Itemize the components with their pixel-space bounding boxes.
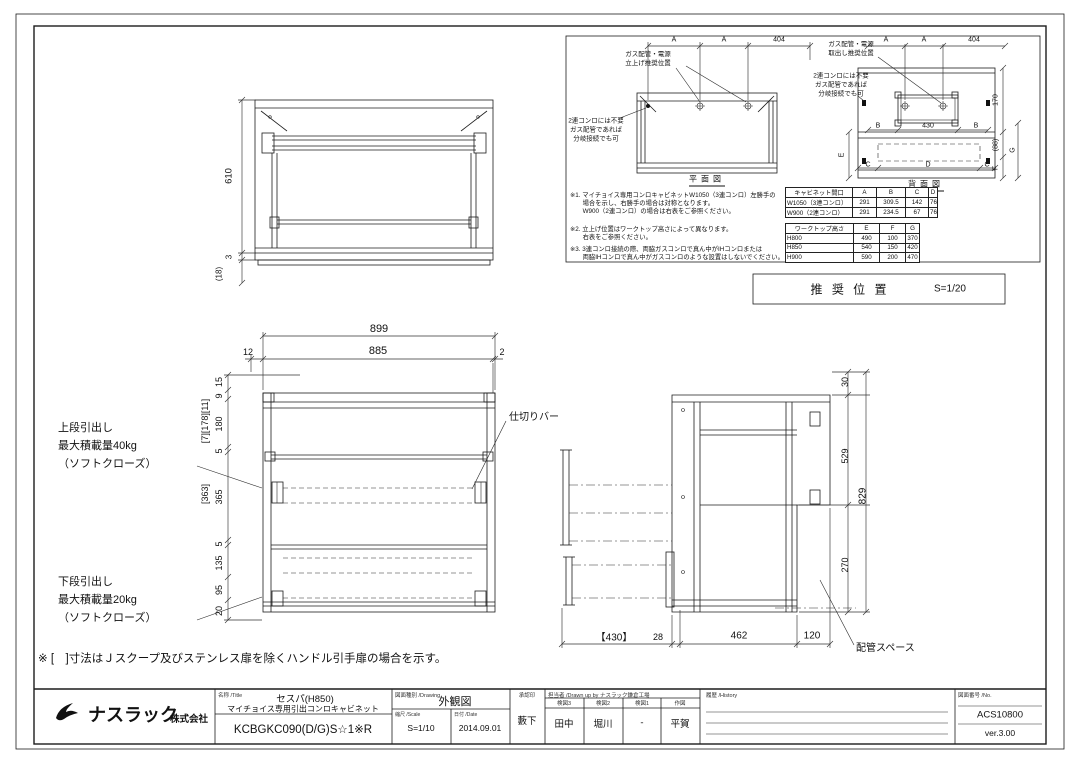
side-dim-462: 462 — [731, 631, 748, 642]
side-dim-529: 529 — [840, 448, 850, 463]
staff-name-2: 堀川 — [593, 716, 612, 730]
rear-dim-430: 430 — [922, 123, 934, 130]
staff-name-4: 平賀 — [670, 716, 689, 730]
approval-label: 承認印 — [519, 691, 536, 699]
front-dim-885: 885 — [369, 345, 387, 357]
scale-value: S=1/10 — [407, 723, 434, 733]
plan-view-label: 平面図 — [689, 174, 725, 187]
drawing-linework — [0, 0, 1080, 763]
rear-dim-170: 170 — [993, 94, 1000, 106]
plan-callout-side: 2連コンロには不要 ガス配管であれば 分岐接続でも可 — [568, 117, 624, 144]
side-dim-120: 120 — [804, 631, 821, 642]
rear-dim-c1: C — [865, 162, 870, 169]
front-dim-180: 180 — [214, 416, 224, 431]
staff-col-label-4: 作図 — [674, 699, 685, 707]
front-dim-9: 9 — [214, 393, 224, 398]
front-dim-20: 20 — [214, 606, 224, 616]
pipe-space-callout: 配管スペース — [856, 639, 915, 654]
rear-callout-top: ガス配管・電源 取出し推奨位置 — [828, 40, 874, 58]
lower-drawer-callout: 下段引出し 最大積載量20kg （ソフトクローズ） — [58, 573, 156, 627]
plan-dim-a2: A — [722, 37, 727, 44]
product-name: マイチョイス専用引出コンロキャビネット — [227, 704, 379, 715]
rear-dim-d: D — [925, 162, 930, 169]
front-dim-overall: 899 — [370, 323, 388, 335]
cabinet-opening-table: キャビネット間口 A B C D W1050（3連コンロ） 291 309.5 … — [785, 187, 938, 218]
recommended-scale-label: S=1/20 — [934, 284, 966, 295]
company-logo-icon — [56, 703, 78, 720]
model-number: KCBGKC090(D/G)S☆1※R — [234, 722, 372, 736]
side-dim-270: 270 — [840, 557, 850, 572]
carcass-dim-bottom: 3 — [225, 255, 234, 259]
rear-callout-side: 2連コンロには不要 ガス配管であれば 分岐接続でも可 — [813, 72, 869, 99]
divider-bar-callout: 仕切りバー — [509, 408, 559, 423]
front-dim-bracket-top: [7][178][11] — [200, 399, 210, 443]
front-dim-365: 365 — [214, 489, 224, 504]
bracket-dimension-note: ※ [ ]寸法はＪスクープ及びステンレス扉を除くハンドル引手扉の場合を示す。 — [38, 650, 446, 666]
rear-dim-f: F — [993, 166, 1000, 170]
rear-dim-e: E — [839, 153, 846, 158]
carcass-view-lines — [238, 97, 493, 286]
rear-dim-a2: A — [922, 37, 927, 44]
scale-label: 縮尺 /Scale — [395, 711, 420, 718]
plan-callout-top: ガス配管・電源 立上げ推奨位置 — [625, 50, 671, 68]
rear-dim-88: (88) — [993, 139, 1000, 151]
drawing-no-label: 図面番号 /No. — [958, 691, 992, 699]
plan-note-2: ※2. 立上げ位置はワークトップ高さによって異なります。 右表をご参照ください。 — [570, 226, 732, 242]
side-view-lines — [559, 369, 870, 648]
drawing-no: ACS10800 — [977, 710, 1023, 721]
carcass-dim-paren: (18) — [215, 267, 224, 281]
company-name: ナスラック — [88, 701, 178, 727]
front-view-lines — [197, 332, 506, 623]
date-label: 日付 /Date — [454, 711, 477, 718]
staff-label: 担当者 /Drawn up by ナスラック鎌倉工場 — [548, 691, 649, 699]
side-dim-829: 829 — [858, 488, 869, 505]
front-dim-2: 2 — [499, 347, 504, 357]
rear-dim-c2: C — [984, 162, 989, 169]
plan-dim-a1: A — [672, 37, 677, 44]
staff-col-label-3: 検図1 — [635, 699, 649, 707]
drawing-type: 外観図 — [439, 693, 472, 709]
carcass-dim-height: 610 — [224, 168, 235, 184]
date-value: 2014.09.01 — [459, 723, 502, 733]
front-dim-5a: 5 — [214, 448, 224, 453]
staff-name-3: - — [640, 718, 643, 729]
name-label: 名称 /Title — [218, 691, 242, 699]
rear-dim-404: 404 — [968, 37, 980, 44]
company-suffix: 株式会社 — [170, 711, 208, 725]
front-dim-95: 95 — [214, 585, 224, 595]
upper-drawer-callout: 上段引出し 最大積載量40kg （ソフトクローズ） — [58, 419, 156, 473]
front-dim-135: 135 — [214, 555, 224, 570]
front-dim-5b: 5 — [214, 541, 224, 546]
staff-col-label-1: 検図3 — [557, 699, 571, 707]
worktop-height-table: ワークトップ高さ E F G H800 490 100 370 H850 540… — [785, 223, 920, 263]
plan-note-3: ※3. 3連コンロ接続の際、両脇ガスコンロで真ん中がIHコンロまたは 両脇IHコ… — [570, 246, 784, 262]
rear-dim-b2: B — [974, 123, 979, 130]
drawing-type-label: 図面種別 /Drawing — [395, 691, 440, 699]
rear-dim-a1: A — [884, 37, 889, 44]
history-label: 履歴 /History — [706, 691, 737, 699]
recommended-position-label: 推 奨 位 置 — [810, 281, 889, 298]
staff-name-1: 田中 — [554, 716, 573, 730]
front-dim-15: 15 — [214, 377, 224, 387]
side-dim-430: 【430】 — [596, 629, 633, 644]
rear-dim-g: G — [1010, 147, 1017, 152]
plan-note-1: ※1. マイチョイス専用コンロキャビネットW1050（3連コンロ）左勝手の 場合… — [570, 192, 776, 215]
side-dim-30: 30 — [840, 377, 850, 387]
approval-name: 藪下 — [517, 713, 536, 727]
side-dim-28: 28 — [653, 632, 663, 642]
front-dim-12: 12 — [243, 347, 253, 357]
staff-col-label-2: 検図2 — [596, 699, 610, 707]
drawing-version: ver.3.00 — [985, 728, 1015, 738]
plan-section-lines — [566, 36, 1040, 304]
front-dim-bracket-mid: [363] — [200, 484, 210, 504]
drawing-sheet: 610 3 (18) A A 404 ガス配管・電源 立上げ推奨位置 2連コンロ… — [0, 0, 1080, 763]
rear-dim-b1: B — [876, 123, 881, 130]
plan-dim-404: 404 — [773, 37, 785, 44]
